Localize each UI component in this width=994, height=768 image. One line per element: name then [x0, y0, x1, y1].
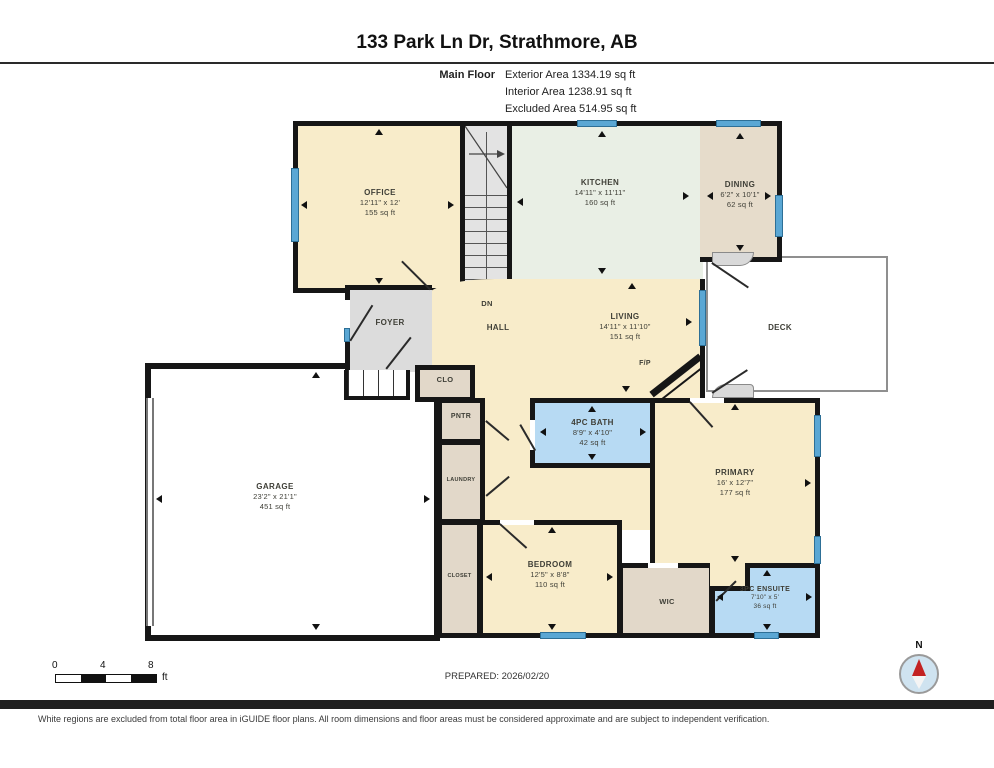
measure-arrow — [312, 372, 320, 378]
compass-icon — [899, 654, 939, 694]
measure-arrow — [731, 404, 739, 410]
kitchen-dims: 14'11" x 11'11" — [515, 188, 685, 198]
scale-tick-8: 8 — [148, 660, 154, 671]
deck-door-bottom — [712, 384, 754, 398]
laundry-label: LAUNDRY — [439, 477, 483, 483]
floor-plan-page: 133 Park Ln Dr, Strathmore, AB Main Floo… — [0, 0, 994, 768]
office-label: OFFICE 12'11" x 12' 155 sq ft — [300, 188, 460, 218]
garage-area: 451 sq ft — [150, 502, 400, 512]
measure-arrow — [622, 386, 630, 392]
garage-label: GARAGE 23'2" x 21'1" 451 sq ft — [150, 482, 400, 512]
closet-label: CLOSET — [438, 573, 481, 579]
wic-door-gap — [648, 563, 678, 568]
kitchen-name: KITCHEN — [515, 178, 685, 188]
measure-arrow — [598, 131, 606, 137]
header-divider — [0, 62, 994, 64]
clo-label: CLO — [420, 375, 470, 384]
compass-north-label: N — [899, 640, 939, 651]
ensuite-label: 3PC ENSUITE 7'10" x 5' 36 sq ft — [715, 585, 815, 611]
bedroom-area: 110 sq ft — [482, 580, 618, 590]
measure-arrow — [548, 527, 556, 533]
ensuite-dims: 7'10" x 5' — [715, 594, 815, 602]
bedroom-window — [540, 632, 586, 639]
deck-label: DECK — [750, 323, 810, 332]
staircase — [460, 121, 512, 303]
measure-arrow — [731, 556, 739, 562]
bath-area: 42 sq ft — [535, 438, 650, 448]
ensuite-window — [754, 632, 779, 639]
prepared-date: PREPARED: 2026/02/20 — [0, 671, 994, 682]
measure-arrow — [628, 283, 636, 289]
foyer-window — [344, 328, 350, 342]
dining-name: DINING — [700, 180, 780, 190]
garage-dims: 23'2" x 21'1" — [150, 492, 400, 502]
excluded-area: Excluded Area 514.95 sq ft — [505, 103, 755, 115]
dining-area: 62 sq ft — [700, 200, 780, 210]
measure-arrow — [375, 278, 383, 284]
exterior-area: Exterior Area 1334.19 sq ft — [505, 69, 755, 81]
primary-dims: 16' x 12'7" — [655, 478, 815, 488]
pntr-label: PNTR — [440, 413, 482, 420]
measure-arrow — [588, 454, 596, 460]
foyer-label: FOYER — [360, 318, 420, 327]
measure-arrow — [736, 133, 744, 139]
measure-arrow — [598, 268, 606, 274]
bedroom-door-gap — [500, 520, 534, 525]
bedroom-label: BEDROOM 12'5" x 8'8" 110 sq ft — [482, 560, 618, 590]
measure-arrow — [763, 570, 771, 576]
primary-label: PRIMARY 16' x 12'7" 177 sq ft — [655, 468, 815, 498]
compass-needle-south — [912, 676, 926, 689]
living-area: 151 sq ft — [545, 332, 705, 342]
bedroom-name: BEDROOM — [482, 560, 618, 570]
measure-arrow — [375, 129, 383, 135]
primary-window-2 — [814, 536, 821, 564]
office-dims: 12'11" x 12' — [300, 198, 460, 208]
measure-arrow — [763, 624, 771, 630]
living-name: LIVING — [545, 312, 705, 322]
entry-steps — [344, 370, 410, 400]
footer-divider — [0, 700, 994, 709]
living-dims: 14'11" x 11'10" — [545, 322, 705, 332]
primary-name: PRIMARY — [655, 468, 815, 478]
room-closet — [437, 520, 482, 638]
disclaimer-text: White regions are excluded from total fl… — [38, 714, 968, 724]
bath-dims: 8'9" x 4'10" — [535, 428, 650, 438]
kitchen-window — [577, 120, 617, 127]
scale-tick-0: 0 — [52, 660, 58, 671]
page-title: 133 Park Ln Dr, Strathmore, AB — [0, 32, 994, 54]
living-label: LIVING 14'11" x 11'10" 151 sq ft — [545, 312, 705, 342]
office-window — [291, 168, 299, 242]
compass-needle-north — [912, 659, 926, 676]
ensuite-area: 36 sq ft — [715, 603, 815, 611]
bath-name: 4PC BATH — [535, 418, 650, 428]
ensuite-name: 3PC ENSUITE — [715, 585, 815, 594]
garage-name: GARAGE — [150, 482, 400, 492]
primary-area: 177 sq ft — [655, 488, 815, 498]
kitchen-label: KITCHEN 14'11" x 11'11" 160 sq ft — [515, 178, 685, 208]
dining-window-top — [716, 120, 761, 127]
hall-label: HALL — [470, 323, 526, 332]
office-area: 155 sq ft — [300, 208, 460, 218]
measure-arrow — [424, 495, 430, 503]
scale-tick-4: 4 — [100, 660, 106, 671]
bath-label: 4PC BATH 8'9" x 4'10" 42 sq ft — [535, 418, 650, 448]
stair-direction-icon — [465, 126, 507, 190]
dn-label: DN — [465, 299, 509, 308]
dining-dims: 6'2" x 10'1" — [700, 190, 780, 200]
kitchen-area: 160 sq ft — [515, 198, 685, 208]
interior-area: Interior Area 1238.91 sq ft — [505, 86, 755, 98]
fp-label: F/P — [630, 360, 660, 367]
measure-arrow — [736, 245, 744, 251]
primary-door-gap — [690, 398, 724, 403]
garage-door — [146, 398, 154, 626]
bedroom-dims: 12'5" x 8'8" — [482, 570, 618, 580]
measure-arrow — [312, 624, 320, 630]
office-name: OFFICE — [300, 188, 460, 198]
dining-label: DINING 6'2" x 10'1" 62 sq ft — [700, 180, 780, 210]
room-pntr — [437, 398, 485, 444]
wic-label: WIC — [645, 597, 689, 606]
measure-arrow — [588, 406, 596, 412]
measure-arrow — [548, 624, 556, 630]
primary-window-1 — [814, 415, 821, 457]
floor-label: Main Floor — [0, 69, 495, 81]
